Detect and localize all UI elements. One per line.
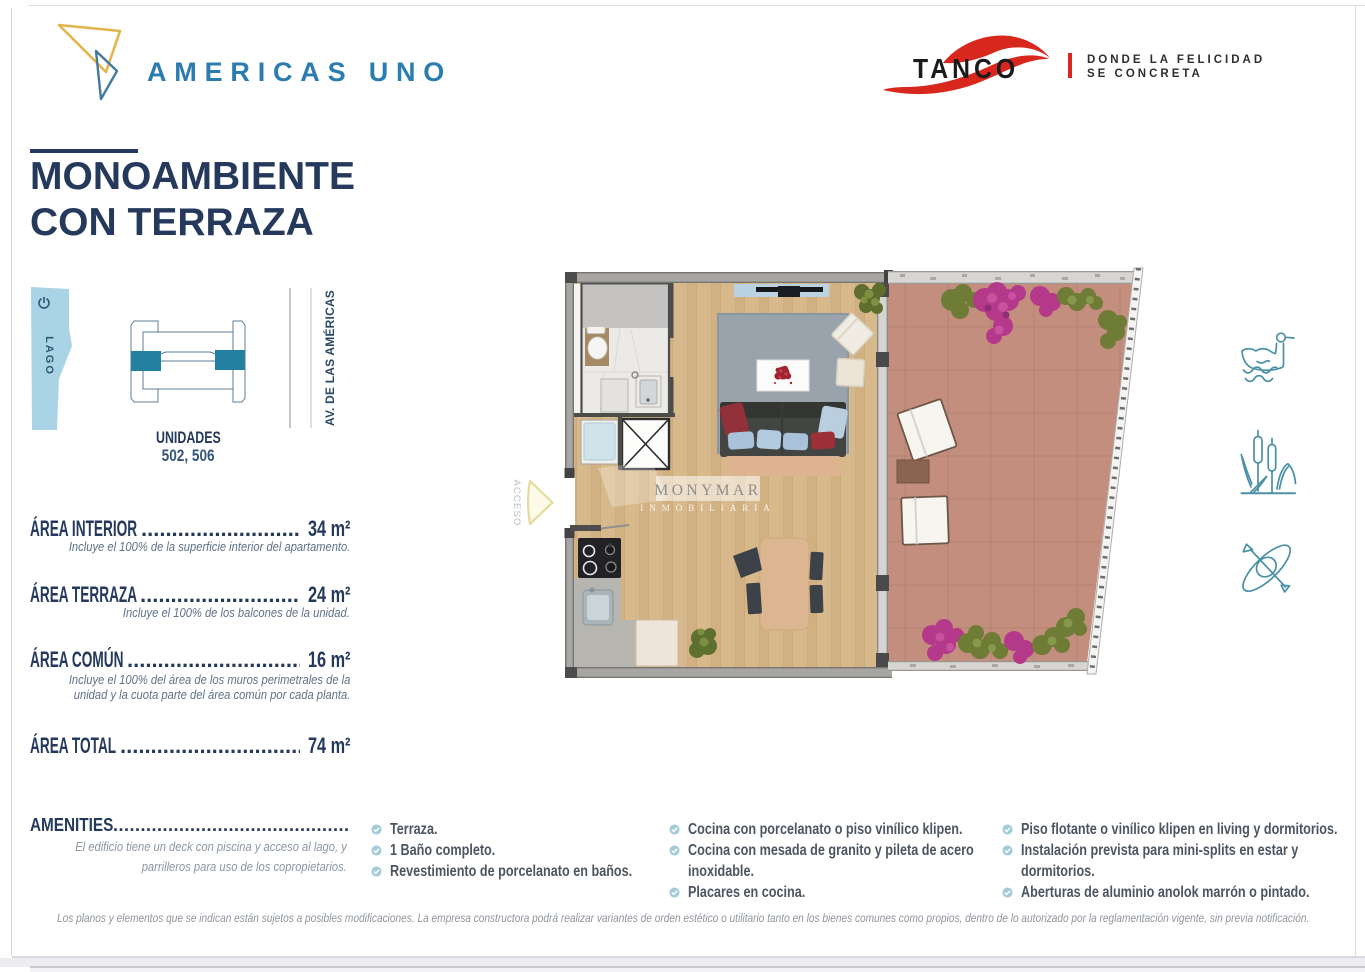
- svg-text:LAGO: LAGO: [43, 336, 55, 376]
- svg-text:AV. DE LAS AMÉRICAS: AV. DE LAS AMÉRICAS: [322, 290, 337, 426]
- svg-text:MONYMAR: MONYMAR: [654, 482, 761, 499]
- svg-text:INMOBILIARIA: INMOBILIARIA: [640, 503, 776, 513]
- svg-text:ACCESO: ACCESO: [511, 479, 522, 526]
